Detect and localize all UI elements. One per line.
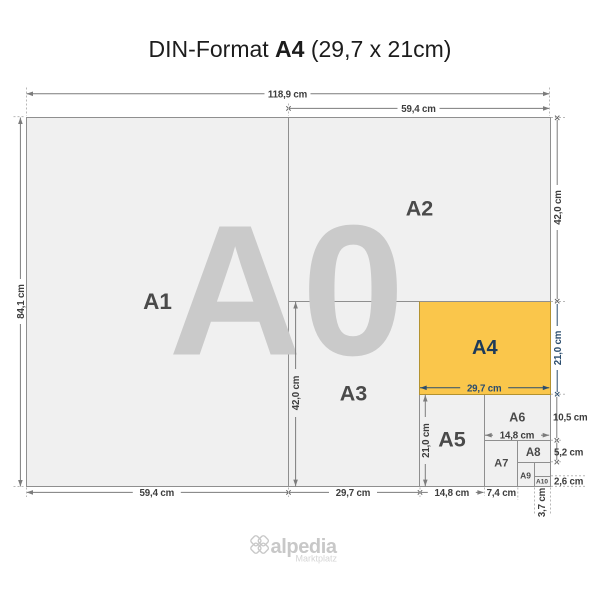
svg-text:7,4 cm: 7,4 cm [487,488,517,499]
svg-text:42,0 cm: 42,0 cm [553,190,564,225]
svg-text:10,5 cm: 10,5 cm [553,413,588,424]
svg-text:29,7 cm: 29,7 cm [467,383,502,394]
svg-text:21,0 cm: 21,0 cm [553,330,564,365]
svg-text:A2: A2 [406,197,434,221]
svg-text:2,6 cm: 2,6 cm [554,477,584,488]
svg-text:29,7 cm: 29,7 cm [336,488,371,499]
svg-text:A4: A4 [472,337,498,359]
svg-text:3,7 cm: 3,7 cm [537,487,548,517]
svg-text:14,8 cm: 14,8 cm [435,488,470,499]
svg-text:84,1 cm: 84,1 cm [16,284,27,319]
svg-text:A5: A5 [438,428,466,452]
svg-text:A7: A7 [494,458,508,470]
svg-text:DIN-Format A4 (29,7 x 21cm): DIN-Format A4 (29,7 x 21cm) [149,36,452,62]
svg-text:59,4 cm: 59,4 cm [401,104,436,115]
svg-text:5,2 cm: 5,2 cm [554,448,584,459]
svg-text:42,0 cm: 42,0 cm [291,375,302,410]
svg-text:21,0 cm: 21,0 cm [421,423,432,458]
svg-text:59,4 cm: 59,4 cm [140,488,175,499]
svg-text:A9: A9 [520,470,531,480]
svg-text:Marktplatz: Marktplatz [295,554,337,564]
svg-text:A8: A8 [526,447,541,459]
svg-text:A3: A3 [340,382,368,406]
svg-text:A10: A10 [536,479,548,486]
svg-text:118,9 cm: 118,9 cm [268,89,308,100]
svg-text:A0: A0 [169,188,405,395]
svg-text:A6: A6 [509,411,525,425]
svg-text:A1: A1 [143,289,172,314]
svg-text:14,8 cm: 14,8 cm [500,431,535,442]
